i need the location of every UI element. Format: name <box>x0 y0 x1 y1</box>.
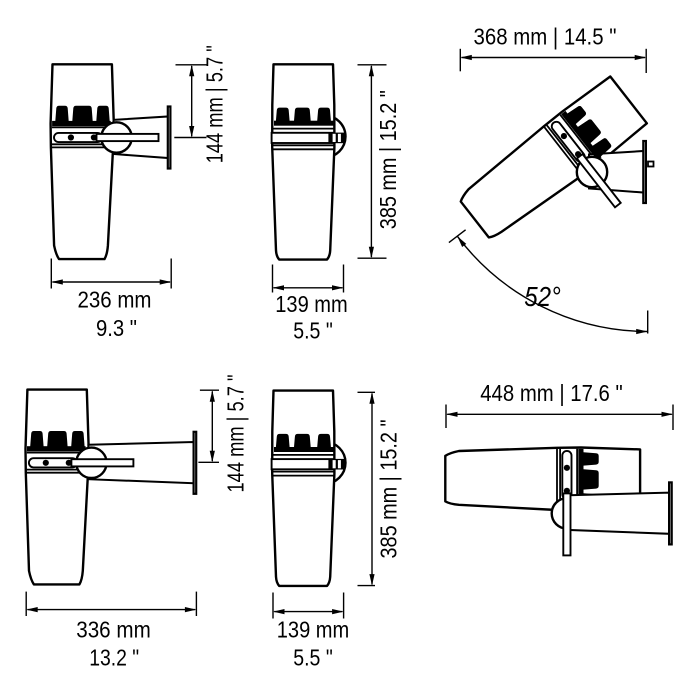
svg-text:385 mm | 15.2 ": 385 mm | 15.2 " <box>375 90 401 229</box>
svg-text:144 mm | 5.7 ": 144 mm | 5.7 " <box>201 45 227 163</box>
svg-text:368 mm | 14.5 ": 368 mm | 14.5 " <box>474 24 617 50</box>
svg-text:52°: 52° <box>524 281 561 312</box>
svg-text:336 mm: 336 mm <box>76 616 151 642</box>
svg-text:13.2 ": 13.2 " <box>89 645 139 671</box>
svg-text:5.5 ": 5.5 " <box>293 645 333 671</box>
svg-text:236 mm: 236 mm <box>78 287 152 313</box>
svg-text:139 mm: 139 mm <box>277 616 350 642</box>
svg-text:144 mm | 5.7 ": 144 mm | 5.7 " <box>223 375 249 493</box>
svg-text:448 mm | 17.6 ": 448 mm | 17.6 " <box>480 380 623 406</box>
svg-text:139 mm: 139 mm <box>275 291 348 317</box>
svg-text:5.5 ": 5.5 " <box>293 318 333 344</box>
svg-text:385 mm | 15.2 ": 385 mm | 15.2 " <box>376 420 402 559</box>
svg-text:9.3 ": 9.3 " <box>96 315 137 341</box>
